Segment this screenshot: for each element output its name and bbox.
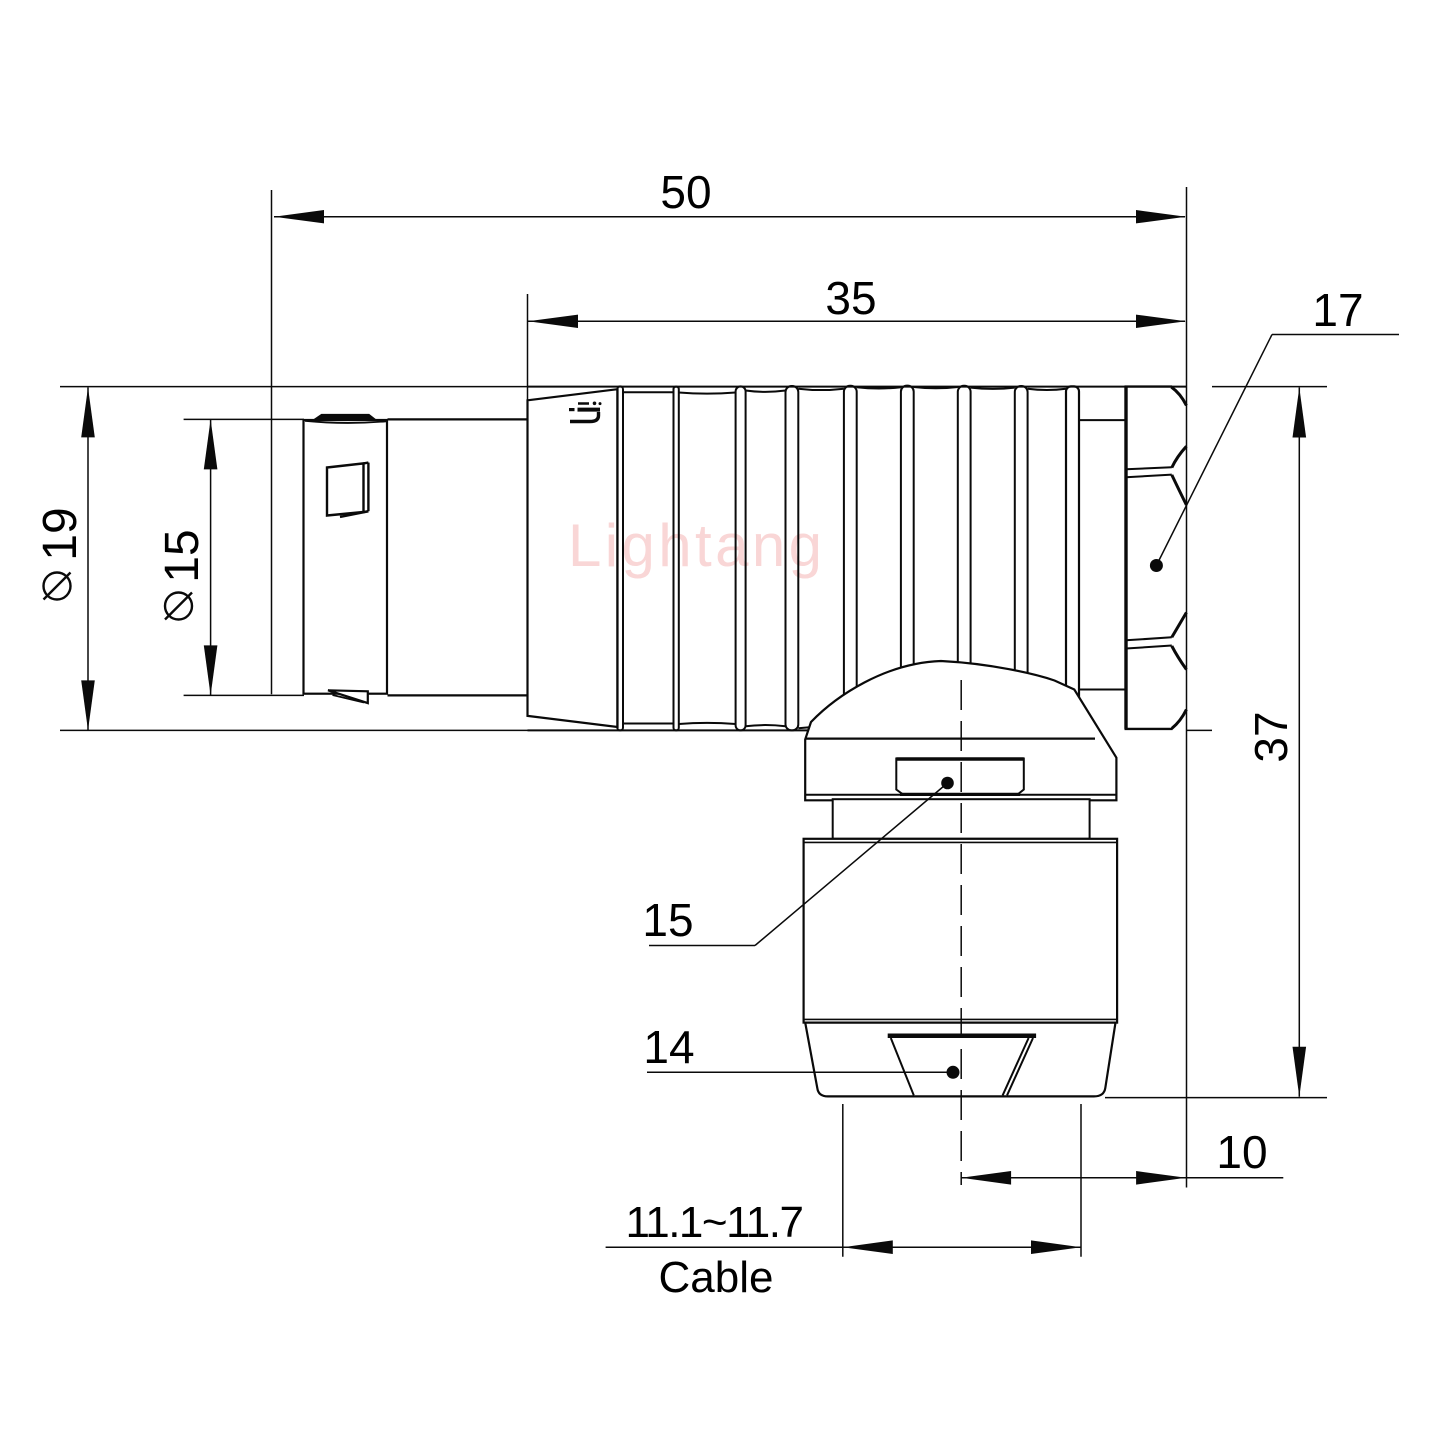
svg-text:15: 15	[642, 894, 693, 946]
svg-text:Cable: Cable	[659, 1253, 774, 1302]
svg-text:19: 19	[34, 507, 87, 560]
svg-text:14: 14	[643, 1021, 694, 1073]
svg-text:15: 15	[156, 529, 209, 582]
svg-text:11.1~11.7: 11.1~11.7	[626, 1198, 803, 1247]
svg-text:10: 10	[1216, 1126, 1267, 1178]
svg-text:17: 17	[1312, 284, 1363, 336]
svg-text:35: 35	[825, 272, 876, 324]
svg-text:50: 50	[660, 166, 711, 218]
svg-text:Lightang: Lightang	[568, 512, 825, 579]
svg-text:37: 37	[1245, 711, 1297, 762]
